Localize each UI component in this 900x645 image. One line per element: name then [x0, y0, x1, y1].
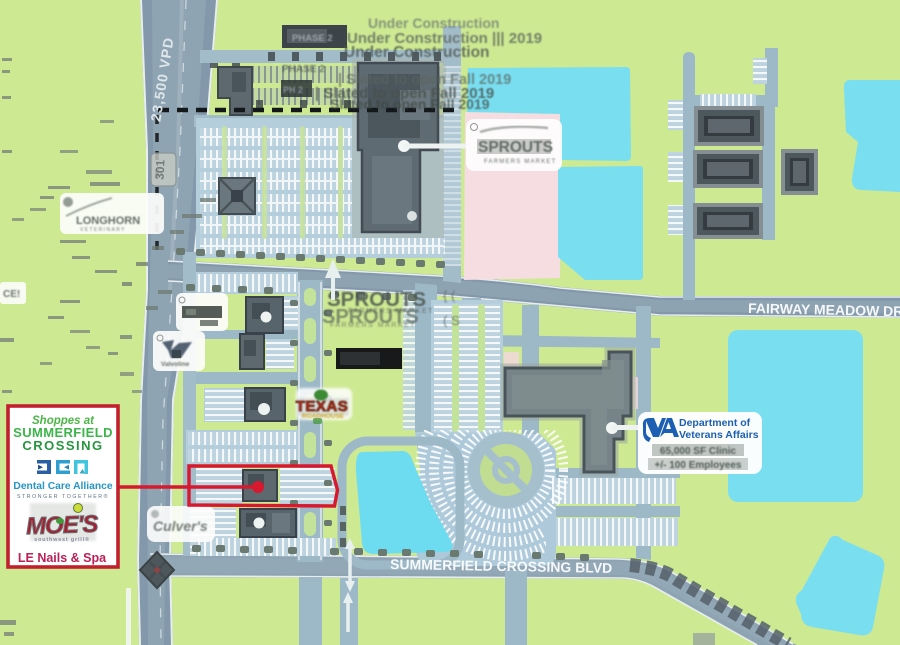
svg-text:FARMERS MARKET: FARMERS MARKET — [348, 308, 434, 315]
svg-text:65,000 SF Clinic: 65,000 SF Clinic — [660, 446, 737, 457]
svg-text:LE Nails & Spa: LE Nails & Spa — [18, 551, 107, 565]
svg-text:MOE'S: MOE'S — [26, 511, 99, 541]
svg-text:FAIRWAY MEADOW DR.: FAIRWAY MEADOW DR. — [748, 300, 900, 319]
svg-text:VETERINARY: VETERINARY — [80, 227, 126, 233]
svg-text:PHASE 2: PHASE 2 — [282, 64, 325, 75]
svg-text:Dental Care Alliance: Dental Care Alliance — [13, 481, 112, 492]
svg-text:Slated to open Fall 2019: Slated to open Fall 2019 — [330, 96, 490, 112]
svg-text:CE!: CE! — [3, 289, 20, 300]
svg-text:{ (: { ( — [443, 288, 456, 303]
svg-text:STRONGER TOGETHER®: STRONGER TOGETHER® — [17, 493, 109, 500]
svg-text:southwest grill®: southwest grill® — [34, 536, 90, 543]
svg-text:+/- 100 Employees: +/- 100 Employees — [655, 460, 742, 471]
svg-text:Under Construction: Under Construction — [368, 15, 499, 31]
svg-text:FARMERS MARKET: FARMERS MARKET — [484, 159, 556, 165]
svg-text:Veterans Affairs: Veterans Affairs — [679, 429, 759, 441]
svg-text:301: 301 — [152, 159, 167, 180]
svg-text:Department of: Department of — [679, 417, 751, 429]
svg-text:PHASE 2: PHASE 2 — [292, 33, 333, 44]
svg-text:FARMERS MARKET: FARMERS MARKET — [330, 322, 416, 329]
svg-text:Culver's: Culver's — [153, 518, 208, 534]
svg-text:( S: ( S — [443, 313, 460, 328]
svg-text:CROSSING: CROSSING — [22, 438, 103, 453]
svg-text:PH 2: PH 2 — [283, 85, 303, 95]
svg-text:Under Construction: Under Construction — [344, 44, 490, 61]
svg-text:Valvoline: Valvoline — [161, 361, 190, 368]
svg-text:LONGHORN: LONGHORN — [76, 215, 140, 227]
svg-text:ROADHOUSE: ROADHOUSE — [302, 413, 345, 420]
